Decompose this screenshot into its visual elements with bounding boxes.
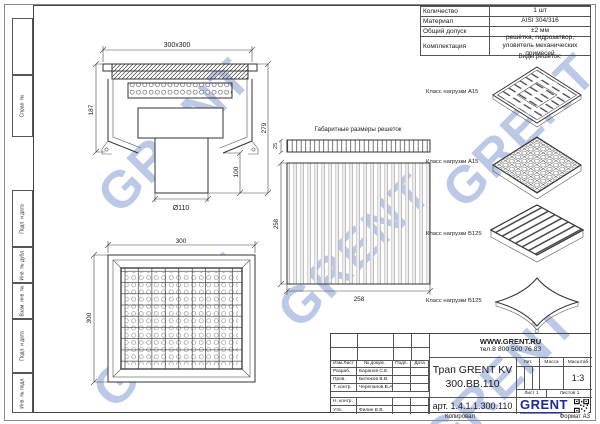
dim-top: 300 [176,238,187,245]
grate-a15-slotted-image [490,64,585,134]
divider [524,367,525,390]
grate-view-label: Класс нагрузки A15 [426,159,490,165]
format-label: Формат А3 [535,414,590,420]
margin-label-text: Справ. № [20,95,26,118]
plan-view-drawing: 300 300 [85,238,270,398]
grate-view-label: Класс нагрузки B125 [426,298,490,304]
grate-a15-mesh-image [490,134,585,204]
divider [532,367,533,390]
scale-header: Масштаб [564,358,592,367]
margin-label-text: Взам. инв. № [20,286,26,317]
revision-header: Подп. [393,360,411,368]
sheets-total: Листов 1 [547,390,592,398]
grate-dims-title: Габаритные размеры решеток [293,126,423,133]
dim-top: 300x300 [164,42,191,49]
staff-date [411,384,429,392]
staff-date [411,368,429,376]
revision-header: Изм.Лист [331,360,357,368]
dim-outlet: 100 [233,166,240,177]
dim-left: 187 [88,104,95,115]
spec-label: Количество [421,7,490,16]
staff-date [411,398,429,406]
staff-sign [393,406,411,414]
spec-label: Материал [421,17,490,26]
margin-label-vzam: Взам. инв. № [12,283,33,319]
article-number: арт. 1.4.1.1.300.110 [429,398,517,414]
title-block: Изм.Лист № докум. Подп. Дата Разраб. Бар… [330,333,591,413]
staff-sign [393,398,411,406]
staff-role: Пров. [331,376,357,384]
scale-value: 1:3 [564,367,592,390]
drawing-sheet: Справ. № Подп. и дата Инв. № дубл. Взам.… [0,0,600,424]
grate-b125-bars-image [490,202,585,268]
lit-cell [517,367,540,390]
revision-header: Дата [411,360,429,368]
document-title-line2: 300.ВВ.110 [445,378,499,391]
company-website: WWW.GRENT.RU [480,337,541,346]
mass-header: Масса [540,358,564,367]
margin-cell-empty [12,18,33,75]
document-title-line1: Трап GRENT KV [433,364,513,377]
qr-code [574,399,589,413]
margin-label-text: Подп. и дата [20,204,26,233]
lit-header: Лит. [517,358,540,367]
staff-sign [393,368,411,376]
grent-logo: GRENT [517,398,569,414]
margin-label-podp2: Подп. и дата [12,319,33,373]
spec-value: 1 шт [490,7,590,16]
spec-label: Комплектация [421,37,490,55]
margin-label-inv-podl: Инв. № подл. [12,373,33,413]
grate-b125-solid-image [490,272,585,338]
spec-label: Общий допуск [421,27,490,36]
dim-diameter: Ø110 [173,205,190,212]
margin-label-inv-dubl: Инв. № дубл. [12,247,33,283]
grate-view-label: Класс нагрузки B125 [426,231,490,237]
grent-logo-text: GRENT [520,399,568,411]
staff-role: Утв. [331,406,357,414]
staff-role: Т. контр. [331,384,357,392]
divider [331,347,429,348]
mass-cell [540,367,564,390]
staff-role: Разраб. [331,368,357,376]
copied-by-label: Копировал [410,414,510,420]
document-title: Трап GRENT KV 300.ВВ.110 [429,358,517,398]
dim-bottom: 258 [354,296,365,303]
margin-label-text: Инв. № подл. [20,377,26,408]
dim-thickness: 25 [273,143,279,149]
grate-dims-drawing: 25 258 258 [272,138,438,304]
company-contacts: WWW.GRENT.RU тел.8 800 500 76 83 [429,334,592,358]
table-row: Количество 1 шт [421,7,590,17]
staff-date [411,406,429,414]
company-phone: тел.8 800 500 76 83 [480,346,542,354]
table-row: Материал AISI 304/316 [421,17,590,27]
staff-sign [393,376,411,384]
revision-header: № докум. [357,360,393,368]
margin-label-text: Инв. № дубл. [20,250,26,281]
staff-name: Битюков В.В. [357,376,393,384]
spec-value: AISI 304/316 [490,17,590,26]
staff-name [357,398,393,406]
staff-date [411,376,429,384]
margin-label-text: Подп. и дата [20,331,26,360]
sheet-number: Лист 1 [517,390,547,398]
section-view-drawing: 300x300 187 279 100 Ø110 [85,36,275,212]
staff-sign [393,384,411,392]
staff-name: Черепанов В.А. [357,384,393,392]
staff-name: Баранов С.Е. [357,368,393,376]
dim-right: 279 [261,122,268,133]
spec-table: Количество 1 шт Материал AISI 304/316 Об… [420,6,591,56]
grate-view-label: Класс нагрузки A15 [426,89,490,95]
staff-name: Филин В.В. [357,406,393,414]
grate-views-title: Виды решеток: [500,53,580,60]
margin-label-podp1: Подп. и дата [12,190,33,247]
staff-role: Н. контр. [331,398,357,406]
margin-label-sprav: Справ. № [12,75,33,137]
dim-left: 300 [86,312,93,323]
dim-left: 258 [274,218,280,229]
